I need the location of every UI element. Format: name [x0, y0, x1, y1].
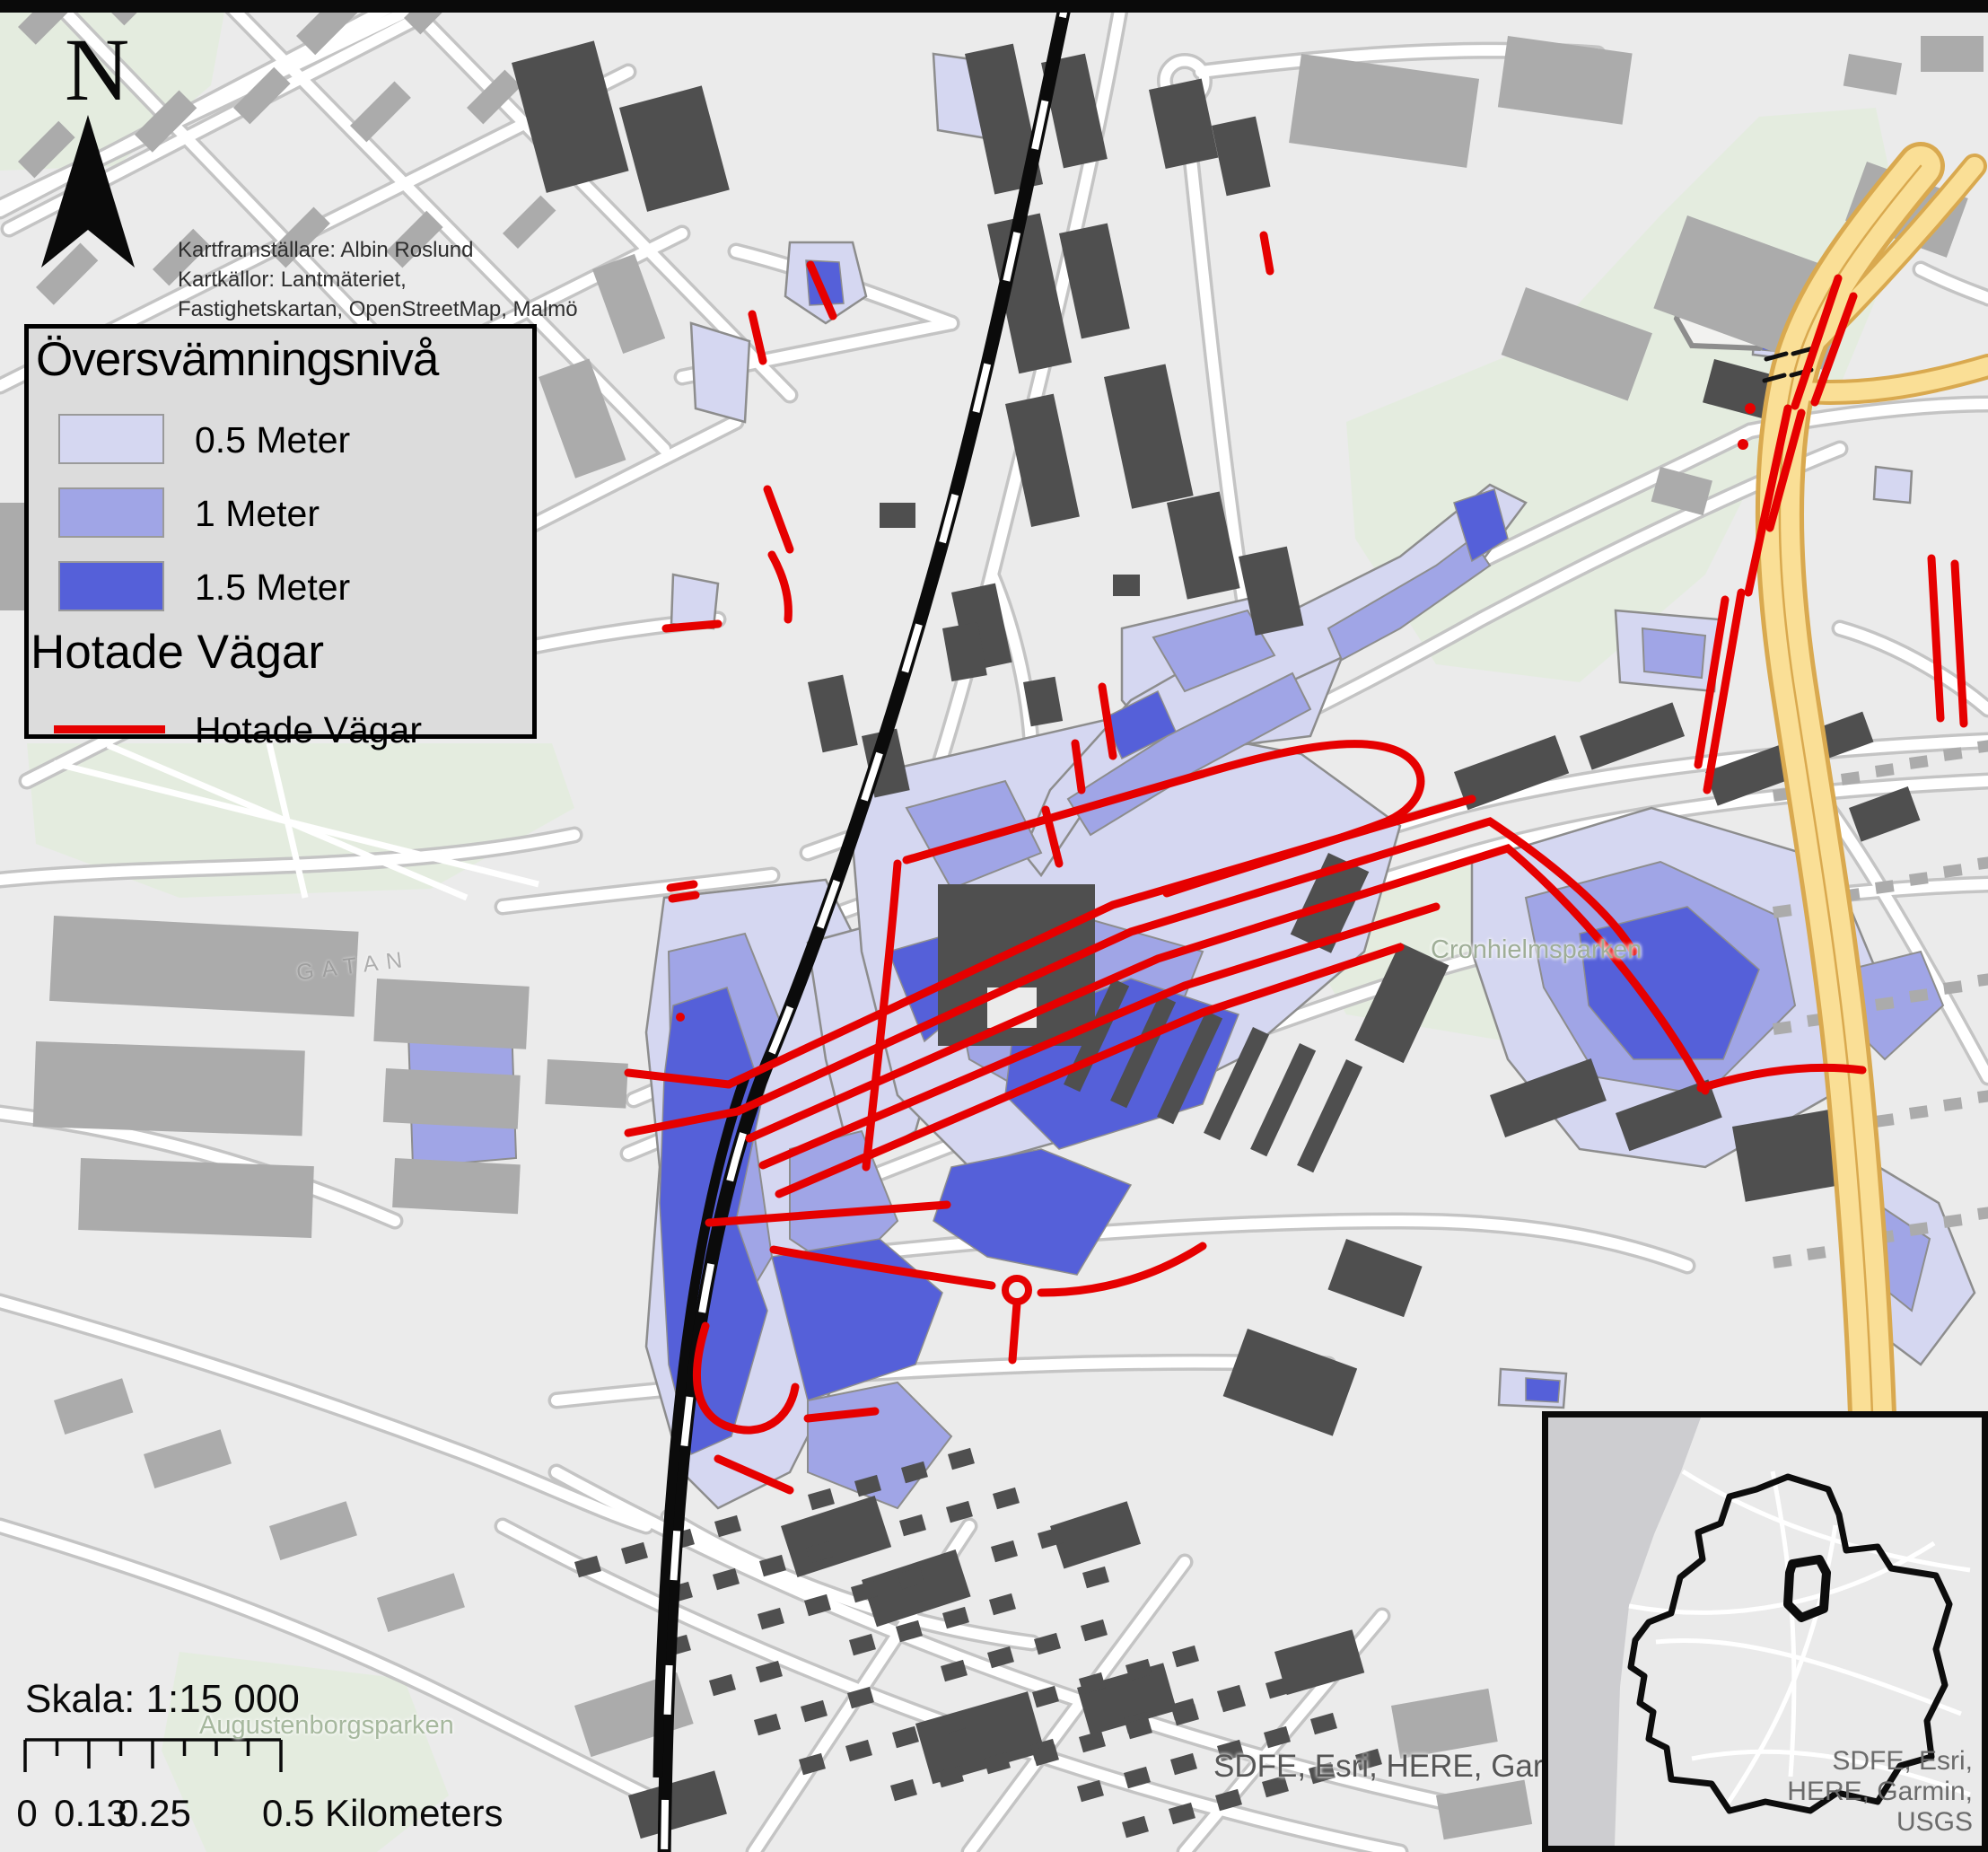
- legend-swatch-1m: [58, 487, 164, 538]
- scale-tick-0: 0: [16, 1792, 37, 1835]
- legend-swatch-15m: [58, 561, 164, 611]
- inset-credit-line: USGS: [1896, 1807, 1973, 1837]
- legend-title: Översvämningsnivå: [36, 332, 438, 387]
- legend-item-threatened-roads: Hotade Vägar: [29, 704, 532, 756]
- park-label-augustenborgsparken: Augustenborgsparken: [199, 1711, 454, 1741]
- north-arrow: N: [36, 25, 153, 285]
- legend-item-1m: 1 Meter: [29, 487, 532, 540]
- attribution-line: Kartkällor: Lantmäteriet,: [178, 265, 600, 294]
- north-arrow-icon: [36, 111, 153, 291]
- park-label-cronhielmsparken: Cronhielmsparken: [1431, 935, 1642, 965]
- scale-tick-013: 0.13: [54, 1792, 127, 1835]
- legend-label-05m: 0.5 Meter: [195, 419, 350, 461]
- scale-tick-05km: 0.5 Kilometers: [262, 1792, 503, 1835]
- flood-map-layout: N Kartframställare: Albin Roslund Kartkä…: [0, 0, 1988, 1852]
- north-label: N: [65, 25, 129, 115]
- overview-inset-map: SDFE, Esri, HERE, Garmin, USGS: [1542, 1411, 1988, 1852]
- legend-label-threatened-roads: Hotade Vägar: [195, 709, 422, 751]
- legend-item-05m: 0.5 Meter: [29, 414, 532, 466]
- inset-credit-line: SDFE, Esri,: [1832, 1746, 1973, 1776]
- scale-block: Skala: 1:15 000 0 0.13 0.25 0.5 Kilomete…: [18, 1677, 592, 1848]
- scale-tick-025: 0.25: [118, 1792, 191, 1835]
- legend-label-15m: 1.5 Meter: [195, 566, 350, 609]
- attribution-line: Kartframställare: Albin Roslund: [178, 235, 600, 265]
- legend-red-line-swatch: [54, 725, 165, 733]
- basemap-credit: SDFE, Esri, HERE, Garmin: [1213, 1749, 1594, 1785]
- inset-credit-line: HERE, Garmin,: [1787, 1777, 1973, 1806]
- legend-swatch-05m: [58, 414, 164, 464]
- inset-map-svg: SDFE, Esri, HERE, Garmin, USGS: [1548, 1418, 1982, 1846]
- legend-item-15m: 1.5 Meter: [29, 561, 532, 613]
- legend-label-1m: 1 Meter: [195, 493, 320, 535]
- legend-section-title: Hotade Vägar: [31, 625, 324, 680]
- map-frame-top-border: [0, 0, 1988, 13]
- legend: Översvämningsnivå 0.5 Meter 1 Meter 1.5 …: [24, 324, 537, 739]
